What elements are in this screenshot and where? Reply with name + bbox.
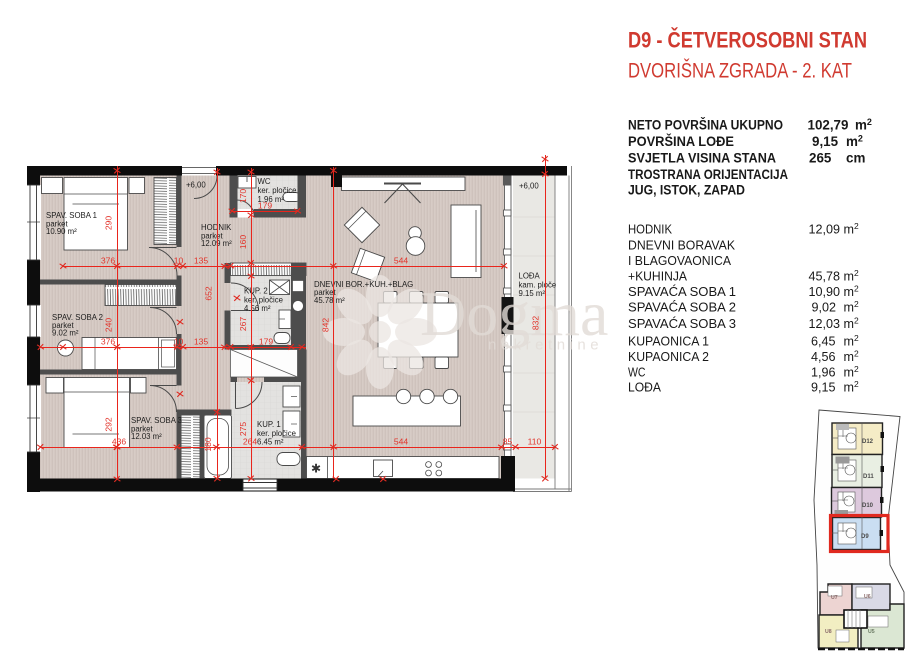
svg-text:275: 275 bbox=[238, 422, 248, 437]
svg-text:DNEVNI BORAVAK: DNEVNI BORAVAK bbox=[628, 238, 736, 252]
svg-text:HODNIK: HODNIK bbox=[628, 223, 673, 237]
svg-text:110: 110 bbox=[528, 437, 542, 447]
svg-text:12.09 m²: 12.09 m² bbox=[201, 239, 232, 248]
svg-text:12.03 m²: 12.03 m² bbox=[131, 432, 162, 441]
svg-text:SPAVAĆA SOBA 3: SPAVAĆA SOBA 3 bbox=[628, 316, 736, 331]
svg-text:160: 160 bbox=[238, 235, 248, 250]
svg-text:170: 170 bbox=[238, 189, 248, 204]
svg-text:SPAVAĆA SOBA 2: SPAVAĆA SOBA 2 bbox=[628, 300, 736, 315]
svg-text:544: 544 bbox=[394, 256, 409, 266]
svg-text:6.45 m²: 6.45 m² bbox=[257, 438, 284, 447]
svg-text:10,90: 10,90 bbox=[809, 285, 841, 299]
svg-text:ker. pločice: ker. pločice bbox=[258, 186, 297, 195]
svg-text:10.90 m²: 10.90 m² bbox=[46, 227, 77, 236]
svg-text:NETO POVRŠINA UKUPNO: NETO POVRŠINA UKUPNO bbox=[628, 118, 783, 133]
svg-text:POVRŠINA LOĐE: POVRŠINA LOĐE bbox=[628, 134, 734, 149]
svg-text:544: 544 bbox=[394, 437, 409, 447]
svg-text:376: 376 bbox=[101, 337, 116, 347]
svg-text:135: 135 bbox=[194, 256, 209, 266]
svg-text:4.56 m²: 4.56 m² bbox=[244, 304, 271, 313]
svg-text:SVJETLA VISINA STANA: SVJETLA VISINA STANA bbox=[628, 151, 776, 166]
svg-text:85: 85 bbox=[503, 437, 513, 447]
svg-text:842: 842 bbox=[321, 318, 331, 333]
svg-text:D11: D11 bbox=[863, 474, 874, 480]
svg-text:10: 10 bbox=[174, 337, 184, 347]
svg-text:102,79: 102,79 bbox=[808, 118, 849, 133]
svg-text:+6,00: +6,00 bbox=[519, 182, 539, 191]
svg-text:WC: WC bbox=[628, 366, 646, 380]
svg-text:292: 292 bbox=[104, 417, 114, 432]
svg-text:9,15: 9,15 bbox=[812, 134, 839, 149]
svg-text:DVORIŠNA ZGRADA - 2. KAT: DVORIŠNA ZGRADA - 2. KAT bbox=[628, 60, 852, 83]
svg-text:9,15: 9,15 bbox=[811, 381, 836, 395]
svg-text:D9: D9 bbox=[861, 534, 869, 540]
svg-text:180: 180 bbox=[203, 437, 213, 452]
svg-text:KUPAONICA 1: KUPAONICA 1 bbox=[628, 335, 709, 349]
svg-text:240: 240 bbox=[104, 318, 114, 333]
svg-text:9,02: 9,02 bbox=[812, 301, 837, 315]
svg-text:9.02 m²: 9.02 m² bbox=[52, 329, 79, 338]
svg-text:832: 832 bbox=[531, 316, 541, 331]
svg-text:179: 179 bbox=[258, 201, 273, 211]
svg-text:KUPAONICA 2: KUPAONICA 2 bbox=[628, 350, 709, 364]
svg-text:✱: ✱ bbox=[311, 462, 321, 476]
svg-text:10: 10 bbox=[174, 256, 184, 266]
svg-text:cm: cm bbox=[846, 151, 865, 166]
svg-text:KUP. 2: KUP. 2 bbox=[244, 287, 268, 296]
svg-text:6,45: 6,45 bbox=[811, 335, 836, 349]
svg-text:I BLAGOVAONICA: I BLAGOVAONICA bbox=[628, 254, 732, 268]
svg-text:SPAVAĆA SOBA 1: SPAVAĆA SOBA 1 bbox=[628, 284, 736, 299]
svg-text:U6: U6 bbox=[864, 594, 871, 600]
svg-text:135: 135 bbox=[194, 337, 209, 347]
svg-text:LOĐA: LOĐA bbox=[628, 381, 662, 395]
svg-text:D12: D12 bbox=[862, 439, 874, 445]
svg-text:U5: U5 bbox=[868, 629, 875, 635]
svg-text:12,03: 12,03 bbox=[809, 317, 841, 331]
svg-text:290: 290 bbox=[104, 216, 114, 231]
svg-text:WC: WC bbox=[258, 177, 271, 186]
svg-text:+6,00: +6,00 bbox=[186, 181, 206, 190]
svg-text:45.78 m²: 45.78 m² bbox=[314, 296, 345, 305]
svg-text:436: 436 bbox=[112, 437, 127, 447]
svg-text:1,96: 1,96 bbox=[811, 366, 836, 380]
svg-text:LOĐA: LOĐA bbox=[519, 272, 541, 281]
svg-text:267: 267 bbox=[238, 317, 248, 332]
svg-text:TROSTRANA ORIJENTACIJA: TROSTRANA ORIJENTACIJA bbox=[628, 167, 788, 182]
svg-text:U7: U7 bbox=[831, 595, 838, 601]
svg-text:179: 179 bbox=[259, 337, 274, 347]
svg-text:45,78: 45,78 bbox=[809, 269, 841, 283]
svg-text:376: 376 bbox=[101, 256, 116, 266]
svg-text:JUG, ISTOK, ZAPAD: JUG, ISTOK, ZAPAD bbox=[628, 183, 745, 198]
svg-text:652: 652 bbox=[204, 286, 214, 301]
svg-text:KUP. 1: KUP. 1 bbox=[257, 420, 281, 429]
svg-text:4,56: 4,56 bbox=[811, 350, 836, 364]
svg-text:264: 264 bbox=[243, 437, 258, 447]
svg-text:D10: D10 bbox=[862, 503, 874, 509]
svg-text:12,09: 12,09 bbox=[809, 223, 841, 237]
svg-text:D9 - ČETVEROSOBNI STAN: D9 - ČETVEROSOBNI STAN bbox=[628, 28, 867, 53]
svg-text:9.15 m²: 9.15 m² bbox=[519, 289, 546, 298]
svg-text:+KUHINJA: +KUHINJA bbox=[628, 269, 688, 283]
svg-text:265: 265 bbox=[809, 151, 832, 166]
svg-text:U8: U8 bbox=[825, 629, 832, 635]
